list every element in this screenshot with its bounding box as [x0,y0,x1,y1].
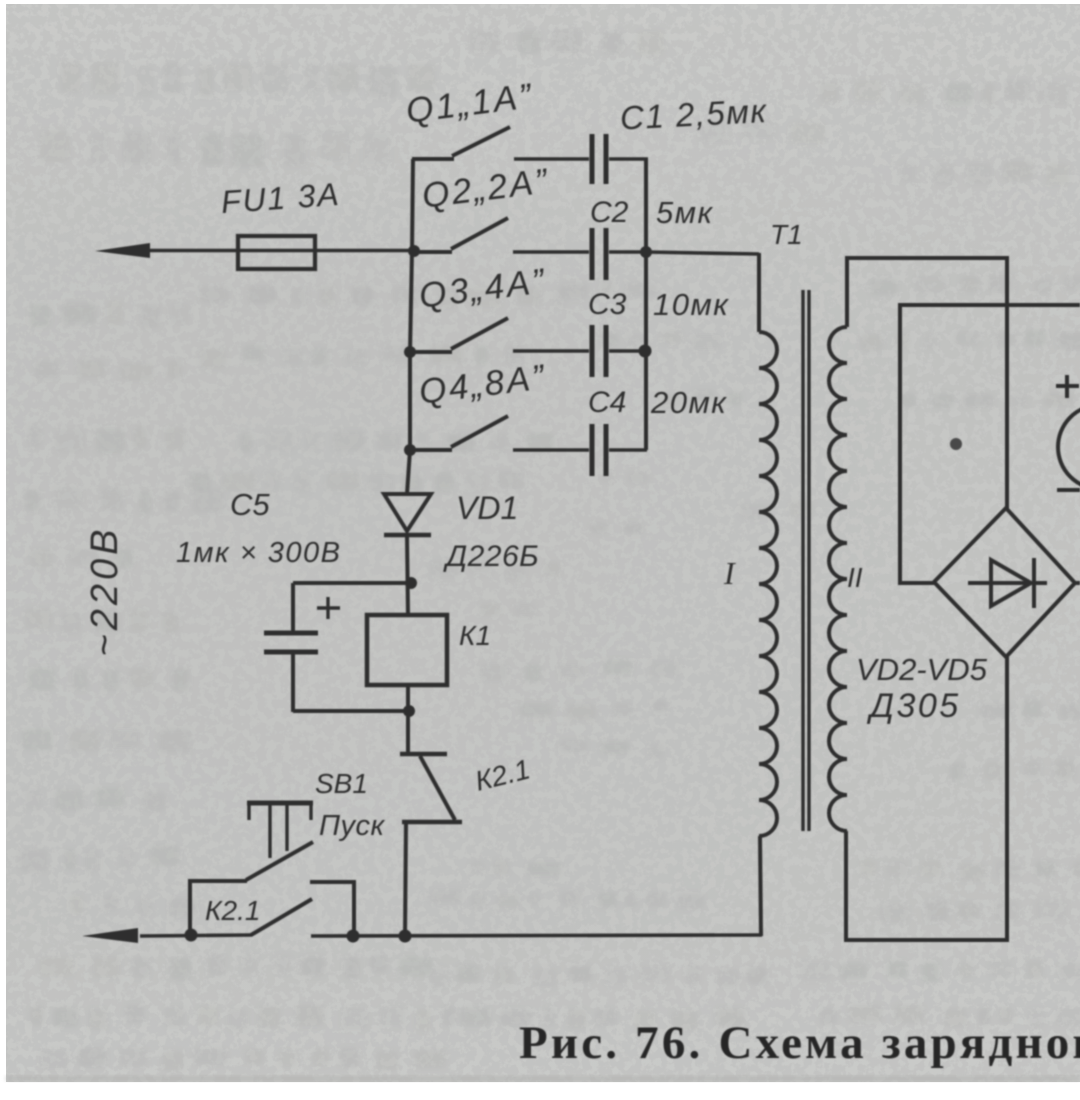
svg-text:10мк: 10мк [653,287,729,322]
svg-text:С4: С4 [588,386,626,419]
svg-text:Д305: Д305 [866,687,961,725]
svg-text:5мк: 5мк [656,195,714,230]
svg-text:К1: К1 [459,620,491,651]
svg-text:К2.1: К2.1 [205,895,260,926]
svg-text:20мк: 20мк [650,385,727,420]
svg-text:С1 2,5мк: С1 2,5мк [619,92,768,137]
svg-text:С5: С5 [230,487,270,522]
svg-text:Т1: Т1 [770,219,803,250]
svg-text:Д226Б: Д226Б [443,540,539,573]
svg-text:1мк × 300В: 1мк × 300В [176,537,341,569]
svg-text:С3: С3 [588,288,627,321]
svg-text:SB1: SB1 [315,768,368,799]
svg-text:Рис. 76. Схема зарядного: Рис. 76. Схема зарядного [519,1017,1080,1069]
svg-text:VD1: VD1 [456,490,518,526]
svg-text:С2: С2 [590,196,629,229]
svg-text:II: II [847,562,863,593]
svg-text:VD2-VD5: VD2-VD5 [856,652,988,687]
svg-text:Пуск: Пуск [319,810,386,842]
svg-text:I: I [723,555,736,591]
svg-text:~220В: ~220В [84,526,126,657]
